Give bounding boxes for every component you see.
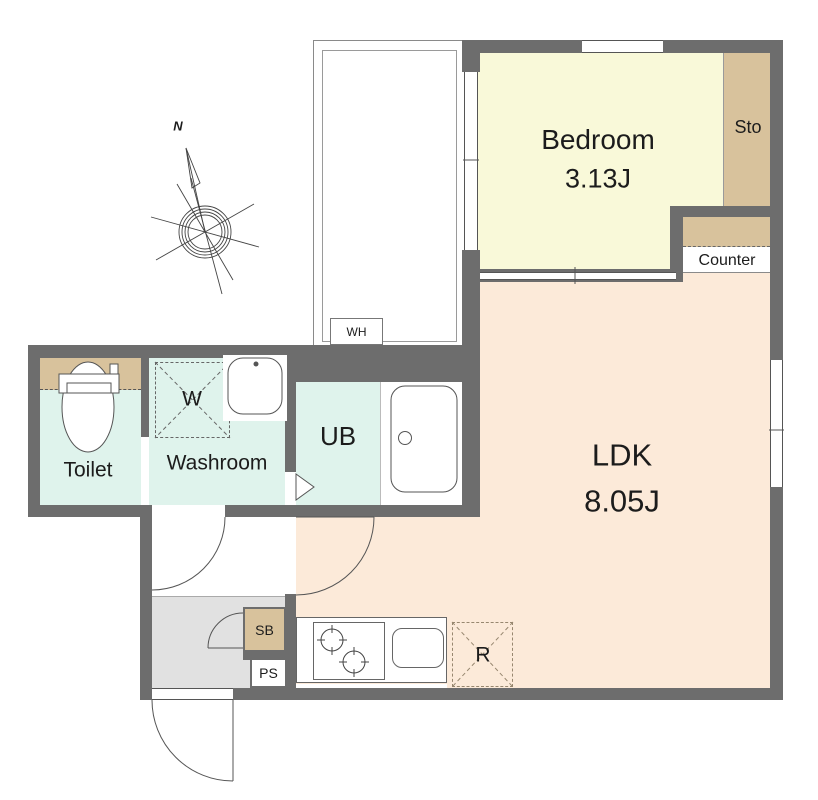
wall-segment bbox=[770, 40, 783, 360]
wall-segment bbox=[28, 505, 150, 517]
wall-segment bbox=[285, 357, 296, 472]
window-ldk-right bbox=[770, 360, 783, 487]
north-label: N bbox=[173, 120, 182, 133]
pipe-space-label: PS bbox=[259, 665, 278, 681]
compass-rose bbox=[151, 148, 259, 294]
ldk-size-label: 8.05J bbox=[584, 486, 660, 517]
wall-segment bbox=[140, 505, 152, 700]
wall-segment bbox=[285, 345, 480, 382]
wall-segment bbox=[462, 40, 582, 53]
counter-label: Counter bbox=[699, 253, 756, 269]
wall-segment bbox=[663, 40, 783, 53]
shoe-box: SB bbox=[243, 607, 286, 652]
wall-segment bbox=[670, 206, 683, 282]
wall-segment bbox=[770, 487, 783, 700]
storage-label: Sto bbox=[734, 118, 761, 136]
bathtub-area bbox=[380, 382, 462, 505]
washing-machine-label: W bbox=[182, 389, 202, 410]
water-heater-box: WH bbox=[330, 318, 383, 345]
pipe-space-box: PS bbox=[250, 658, 287, 688]
toilet-shelf bbox=[40, 357, 141, 390]
refrigerator-label: R bbox=[475, 645, 490, 666]
hall-area bbox=[152, 517, 285, 597]
wall-segment bbox=[285, 505, 296, 517]
ldk-name-label: LDK bbox=[592, 440, 652, 471]
wall-segment bbox=[140, 688, 783, 700]
floor-plan: WH SB PS bbox=[0, 0, 818, 800]
wall-segment bbox=[670, 206, 783, 217]
ldk-room-upper bbox=[472, 270, 770, 517]
toilet-label: Toilet bbox=[63, 460, 112, 481]
kitchen-sink bbox=[392, 628, 444, 668]
wall-segment bbox=[225, 505, 480, 517]
wall-segment bbox=[141, 357, 149, 437]
counter-top-band bbox=[683, 217, 770, 247]
front-door-opening bbox=[152, 688, 233, 700]
kitchen-stove bbox=[313, 622, 385, 680]
window-bedroom-balcony bbox=[464, 72, 478, 250]
window-top bbox=[582, 40, 663, 53]
bedroom-name-label: Bedroom bbox=[541, 126, 655, 154]
wall-segment bbox=[28, 345, 285, 358]
kitchen-counter-edge bbox=[296, 684, 447, 688]
unit-bath-label: UB bbox=[320, 423, 356, 449]
window-bedroom-ldk bbox=[480, 272, 676, 280]
washroom-label: Washroom bbox=[167, 453, 268, 474]
shoe-box-label: SB bbox=[255, 622, 274, 638]
wall-segment bbox=[462, 40, 480, 72]
bedroom-size-label: 3.13J bbox=[565, 166, 631, 193]
balcony-inner-rail bbox=[322, 50, 457, 342]
wall-segment bbox=[462, 250, 480, 517]
water-heater-label: WH bbox=[347, 325, 367, 339]
front-door-swing bbox=[152, 700, 233, 781]
wall-segment bbox=[28, 345, 40, 517]
